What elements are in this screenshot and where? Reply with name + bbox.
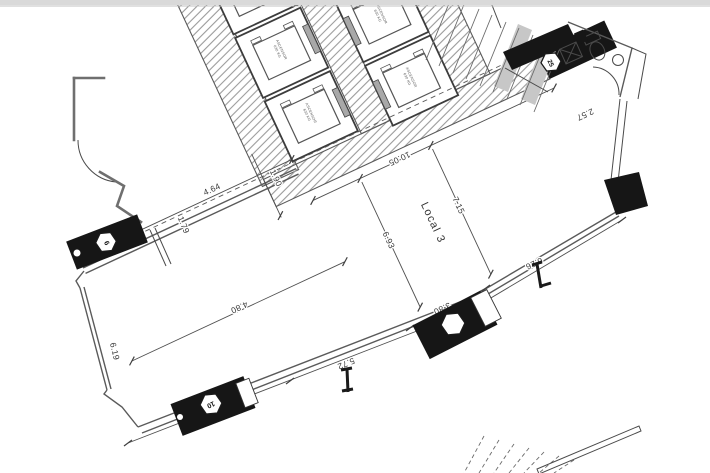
dashed-tread <box>524 452 544 473</box>
wall-line <box>80 288 107 390</box>
dimension-depth-right: 7.15 <box>428 147 497 279</box>
dim-tick <box>618 217 626 223</box>
dim-text: 6.93 <box>381 230 398 250</box>
floor-plan-svg: ASCENSOR630 KG ASCENSOR630 KG ASCENSOR63… <box>0 0 710 473</box>
dim-tick <box>406 325 414 331</box>
wall-line <box>618 101 627 182</box>
wall-jog <box>76 271 84 288</box>
dashed-tread <box>539 456 559 473</box>
column-marker-10: 10 <box>170 376 258 436</box>
dim-text: 4.64 <box>202 181 222 198</box>
dim-text: 6.19 <box>108 341 122 361</box>
wall-left-exterior-door <box>74 78 141 222</box>
wc-wall-outer <box>632 48 646 99</box>
dim-tick <box>486 270 496 279</box>
wall-opening-marker <box>341 368 353 392</box>
dimension-depth-left: 6.93 <box>357 180 426 312</box>
top-window-edge <box>0 0 710 5</box>
thin-wall-bottom-right <box>537 426 641 473</box>
dim-tick <box>340 257 350 266</box>
column-marker-unnumbered <box>413 290 502 360</box>
dim-tick <box>415 303 425 312</box>
dim-tick <box>549 84 559 93</box>
dim-tick <box>308 196 318 205</box>
wall-line <box>473 216 619 303</box>
stairs-dashed-bottom-right <box>464 426 641 473</box>
room-local-3-label: Local 3 <box>418 200 447 245</box>
dashed-tread <box>494 444 514 473</box>
hinge-dot <box>177 414 183 420</box>
dashed-tread <box>479 440 499 473</box>
dim-text: 2.57 <box>575 106 595 123</box>
sink-icon <box>613 55 624 66</box>
wall-right <box>604 99 648 215</box>
dashed-tread <box>464 436 484 473</box>
column-black-corner <box>604 172 648 215</box>
dim-tick <box>426 141 436 150</box>
door-arc <box>593 67 619 95</box>
dim-text: 7.15 <box>450 195 467 215</box>
dim-tick <box>276 211 286 220</box>
wall-left-lower: 6.19 <box>76 271 138 427</box>
dim-text: 4.80 <box>229 299 249 316</box>
dimension-interior-left: 4.80 <box>125 253 350 366</box>
floor-plan-screenshot: ASCENSOR630 KG ASCENSOR630 KG ASCENSOR63… <box>0 0 710 473</box>
dashed-tread <box>509 448 529 473</box>
dimension-bottom-right-wall: 6.26 <box>470 217 626 311</box>
wall-line <box>611 99 620 180</box>
hinge-dot <box>74 250 81 257</box>
dim-line <box>138 160 292 232</box>
dim-tick <box>355 174 365 183</box>
dim-line <box>474 220 622 308</box>
door-arc <box>78 140 116 182</box>
wall-line <box>84 287 111 389</box>
dim-tick <box>124 440 132 446</box>
wall-jog <box>104 390 138 427</box>
dim-tick <box>127 357 137 366</box>
column-marker-6: 6 <box>66 214 148 269</box>
